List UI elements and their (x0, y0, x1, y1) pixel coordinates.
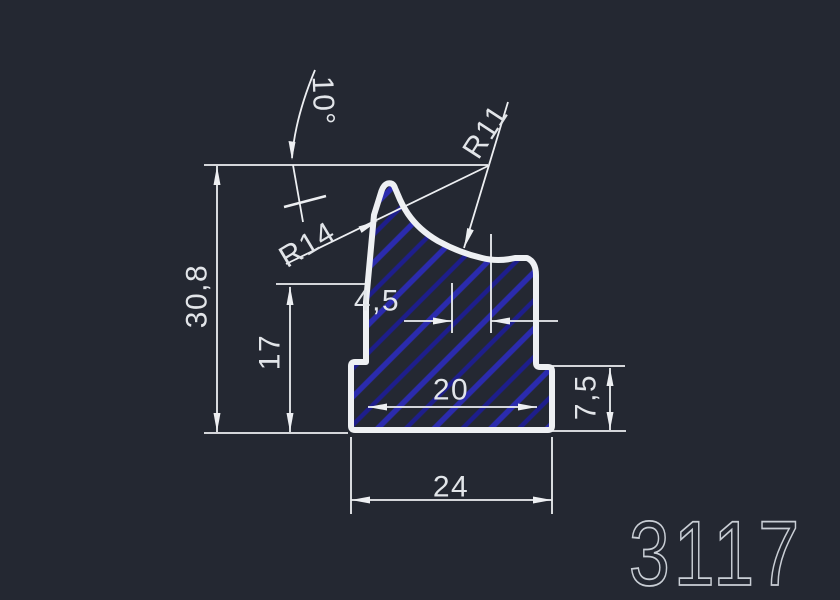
dim-text-radius-r14: R14 (273, 215, 341, 274)
dim-text-body-width: 20 (433, 374, 469, 407)
arrowhead-r11 (464, 228, 474, 248)
arrowhead-body-height-bottom (287, 413, 294, 432)
arrowhead-angle (289, 141, 296, 160)
arrowhead-total-height-top (214, 166, 221, 185)
arrowhead-base-height-top (607, 368, 614, 386)
arrowhead-total-height-bottom (214, 413, 221, 432)
cad-drawing-page: 30,8 17 7,5 4,5 20 24 10° R14 R11 3117 (0, 0, 840, 600)
dim-text-angle: 10° (306, 76, 341, 127)
angle-oblique-tick (284, 196, 326, 207)
arrowhead-base-width-left (351, 497, 370, 504)
dim-text-base-height: 7,5 (570, 374, 603, 420)
dim-text-total-height: 30,8 (181, 264, 214, 328)
arrowhead-body-height-top (287, 286, 294, 305)
arrowhead-base-height-bottom (607, 412, 614, 430)
cad-canvas: 30,8 17 7,5 4,5 20 24 10° R14 R11 3117 (0, 0, 840, 600)
arrowhead-base-width-right (533, 497, 552, 504)
part-number-label: 3117 (629, 502, 803, 600)
dim-text-base-width: 24 (433, 471, 469, 504)
angle-leg-line (293, 165, 303, 222)
dim-text-top-offset: 4,5 (354, 285, 400, 318)
dim-text-body-height: 17 (254, 334, 287, 370)
